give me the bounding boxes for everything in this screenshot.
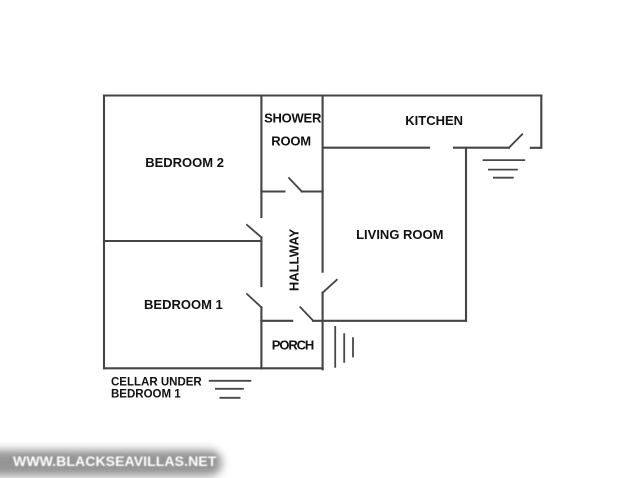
svg-text:CELLAR UNDER: CELLAR UNDER — [111, 377, 202, 389]
svg-text:LIVING ROOM: LIVING ROOM — [356, 227, 443, 242]
svg-text:KITCHEN: KITCHEN — [405, 113, 463, 128]
svg-text:ROOM: ROOM — [271, 134, 311, 149]
svg-text:SHOWER: SHOWER — [264, 111, 322, 126]
svg-text:PORCH: PORCH — [272, 338, 314, 353]
svg-text:BEDROOM 1: BEDROOM 1 — [144, 297, 223, 312]
svg-text:BEDROOM 1: BEDROOM 1 — [111, 389, 181, 401]
svg-text:BEDROOM 2: BEDROOM 2 — [145, 155, 224, 170]
svg-text:HALLWAY: HALLWAY — [287, 228, 302, 291]
